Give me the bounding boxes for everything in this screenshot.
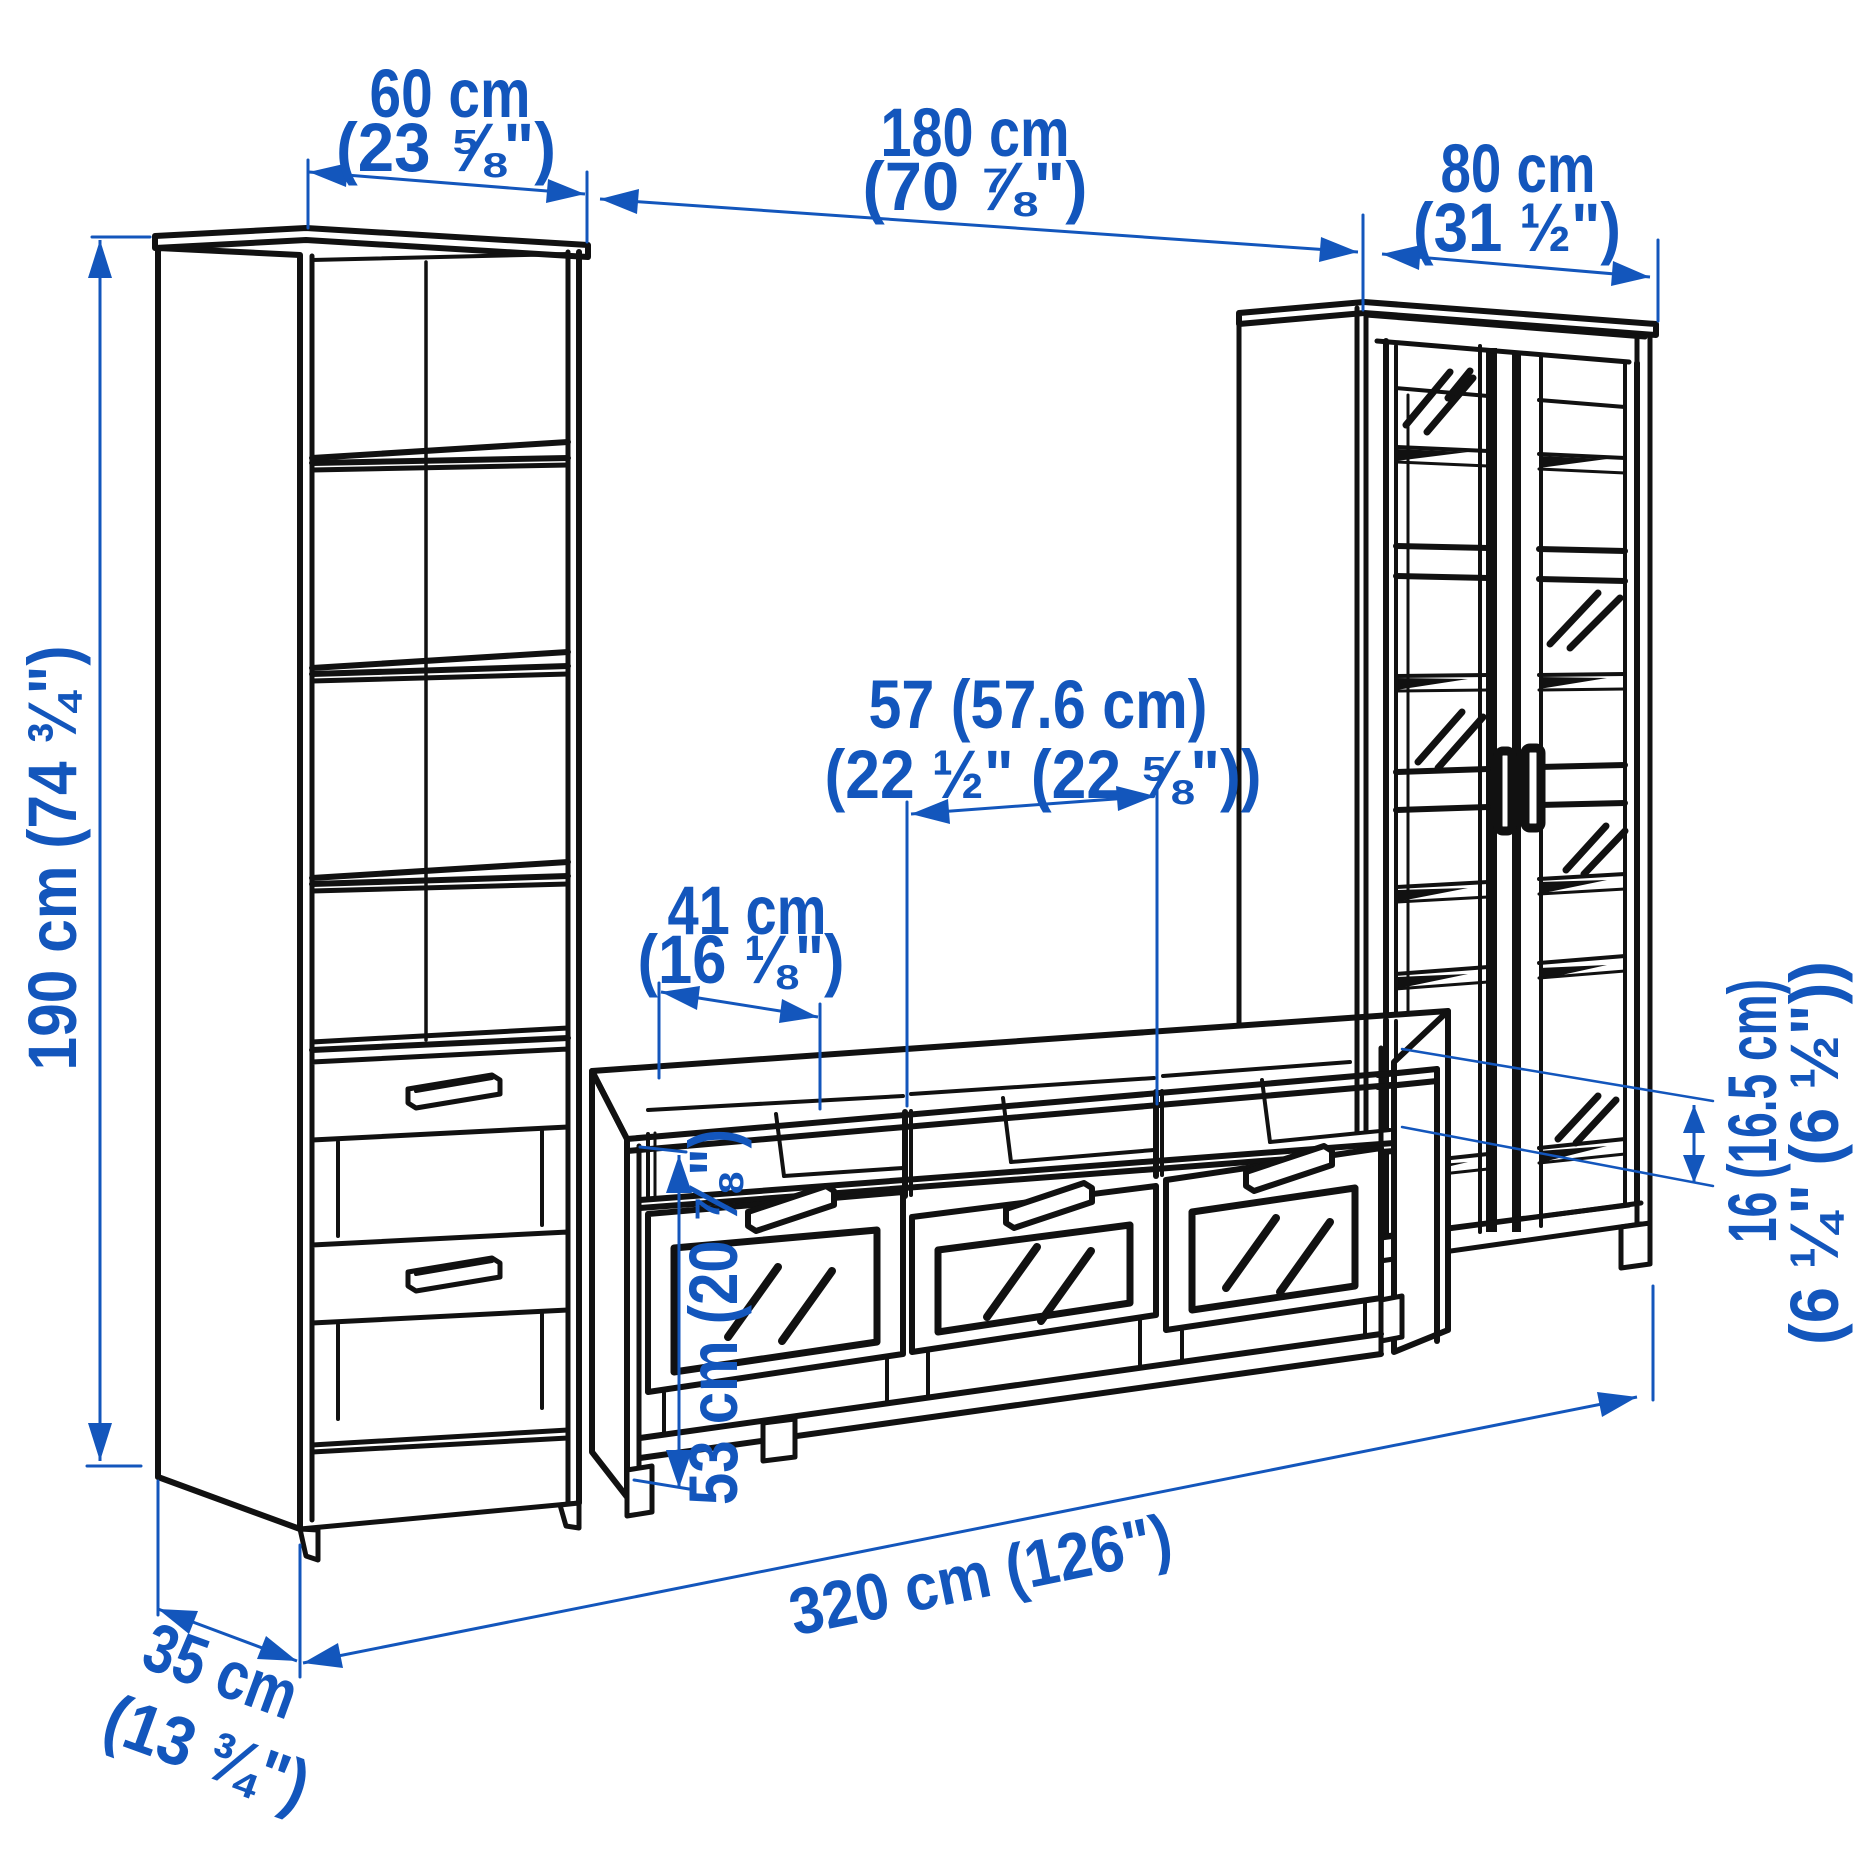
svg-text:190 cm (74 ¾"): 190 cm (74 ¾") <box>14 646 91 1071</box>
svg-text:57 (57.6 cm): 57 (57.6 cm) <box>869 666 1208 743</box>
svg-text:(16 ⅛"): (16 ⅛") <box>638 921 845 998</box>
svg-text:53 cm (20 ⅞"): 53 cm (20 ⅞") <box>675 1129 752 1505</box>
svg-text:(31 ½"): (31 ½") <box>1413 189 1621 266</box>
svg-text:(23 ⅝"): (23 ⅝") <box>336 109 556 186</box>
svg-text:(6 ¼" (6 ½")): (6 ¼" (6 ½")) <box>1776 961 1853 1345</box>
svg-text:(70 ⅞"): (70 ⅞") <box>863 148 1088 225</box>
svg-text:(22 ½" (22 ⅝")): (22 ½" (22 ⅝")) <box>825 736 1262 813</box>
